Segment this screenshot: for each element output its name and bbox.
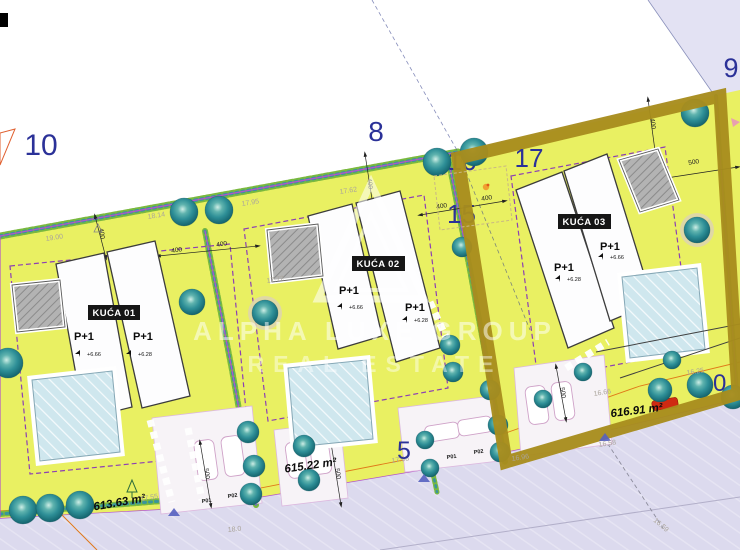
house-label-kuca-01: KUĆA 01	[92, 307, 135, 319]
svg-text:+6.66: +6.66	[349, 305, 363, 311]
svg-text:+6.66: +6.66	[87, 352, 101, 358]
svg-text:P+1: P+1	[133, 331, 153, 343]
svg-text:+6.28: +6.28	[567, 277, 581, 283]
svg-text:P+1: P+1	[339, 285, 359, 297]
house-label-kuca-02: KUĆA 02	[356, 258, 399, 270]
parcel-number-5: 5	[397, 437, 411, 465]
site-plan: 16 15 6 10	[0, 0, 740, 550]
svg-text:18.0: 18.0	[227, 526, 241, 534]
site-plan-canvas: 16 15 6 10	[0, 0, 740, 550]
svg-text:P+1: P+1	[74, 331, 94, 343]
corner-black-mark	[0, 13, 8, 27]
svg-text:P+1: P+1	[600, 241, 620, 253]
svg-text:+6.66: +6.66	[610, 255, 624, 261]
watermark-line2: REAL ESTATE	[248, 351, 503, 377]
svg-text:+6.28: +6.28	[414, 318, 428, 324]
svg-text:P+1: P+1	[405, 302, 425, 314]
svg-text:+6.28: +6.28	[138, 352, 152, 358]
svg-text:P+1: P+1	[554, 262, 574, 274]
parcel-number-9: 9	[723, 53, 738, 83]
watermark-line1: ALPHA LUXE GROUP	[193, 316, 557, 346]
house-label-kuca-03: KUĆA 03	[562, 216, 605, 228]
parcel-number-8: 8	[368, 116, 384, 147]
parcel-number-10-left: 10	[24, 129, 57, 162]
parcel-number-17: 17	[515, 143, 544, 173]
